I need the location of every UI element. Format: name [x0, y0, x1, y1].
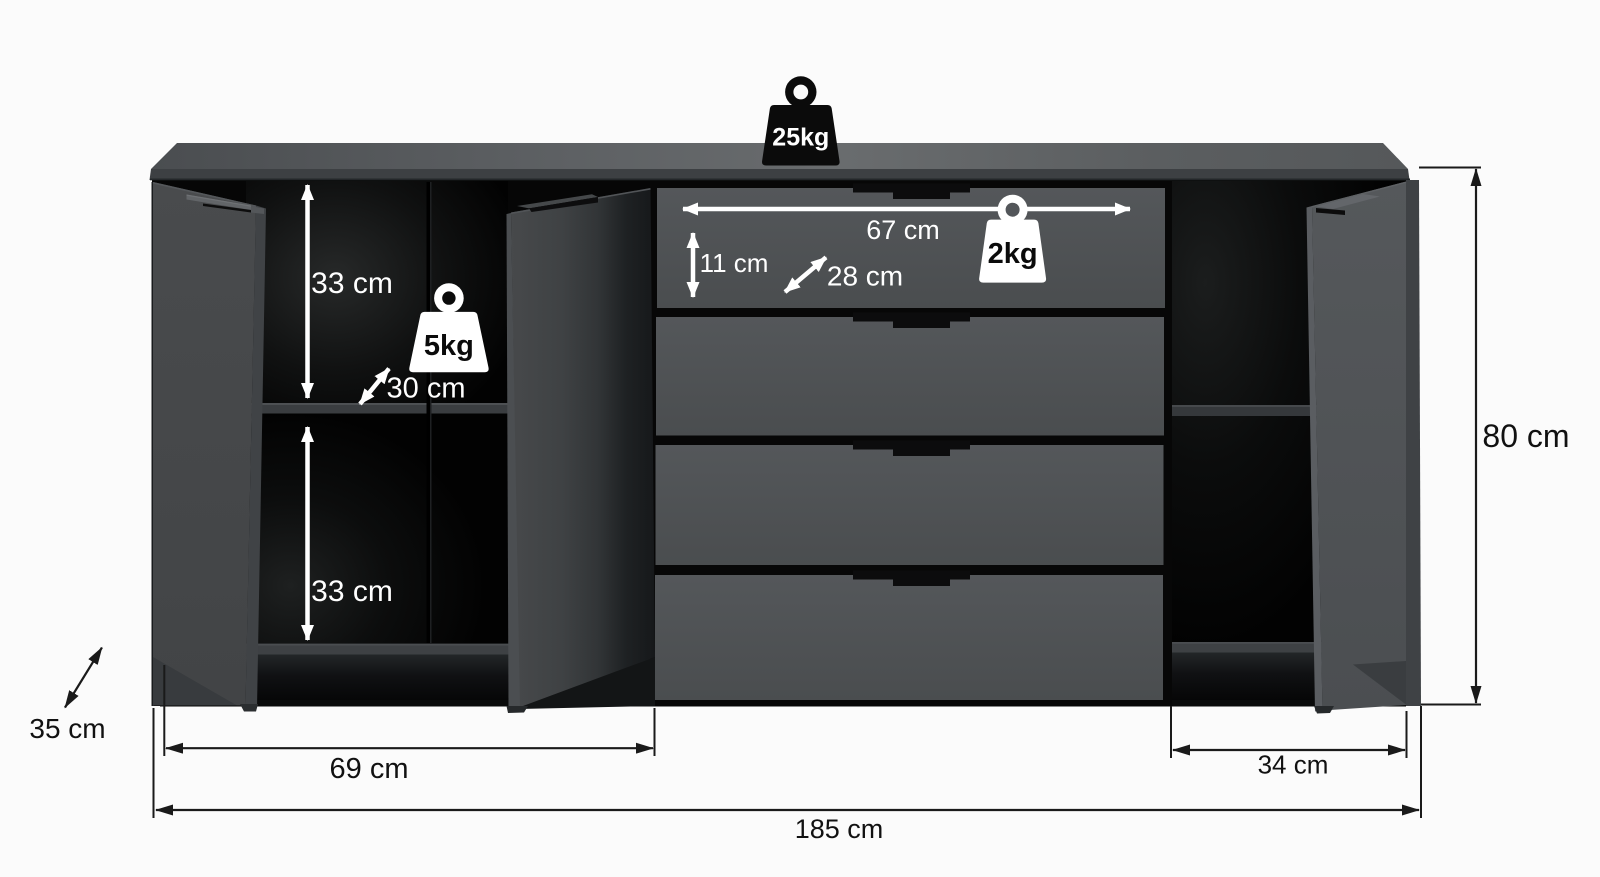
svg-text:33 cm: 33 cm: [311, 575, 393, 608]
svg-text:67 cm: 67 cm: [866, 215, 940, 245]
svg-text:33 cm: 33 cm: [311, 267, 393, 300]
svg-text:80 cm: 80 cm: [1482, 418, 1569, 454]
svg-text:69 cm: 69 cm: [330, 753, 409, 785]
svg-text:30 cm: 30 cm: [387, 373, 466, 405]
svg-text:185 cm: 185 cm: [795, 814, 884, 844]
svg-text:25kg: 25kg: [772, 124, 829, 152]
svg-text:2kg: 2kg: [988, 238, 1038, 270]
svg-text:28 cm: 28 cm: [827, 261, 903, 292]
svg-text:34 cm: 34 cm: [1258, 750, 1329, 780]
svg-text:5kg: 5kg: [424, 330, 474, 362]
svg-text:11 cm: 11 cm: [700, 248, 769, 278]
svg-text:35 cm: 35 cm: [29, 713, 105, 744]
